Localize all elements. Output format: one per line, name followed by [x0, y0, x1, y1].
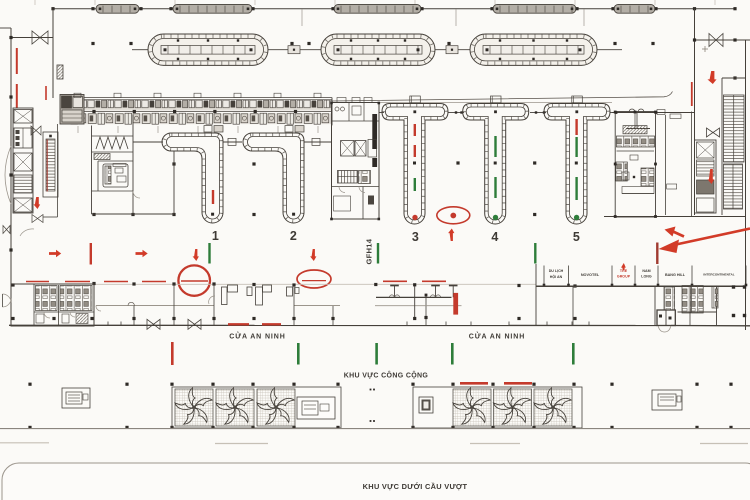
svg-text:4: 4 [491, 230, 498, 244]
svg-text:CỬA AN NINH: CỬA AN NINH [469, 332, 525, 341]
svg-text:GROUP: GROUP [617, 275, 631, 279]
svg-text:KHU VỰC CÔNG CỘNG: KHU VỰC CÔNG CỘNG [344, 371, 429, 380]
svg-text:1: 1 [212, 229, 219, 243]
svg-text:5: 5 [573, 230, 580, 244]
svg-text:NAM: NAM [642, 269, 650, 273]
svg-text:BANG HILL: BANG HILL [665, 273, 686, 277]
svg-text:HỘI AN: HỘI AN [550, 274, 563, 279]
svg-text:CỬA AN NINH: CỬA AN NINH [229, 332, 285, 341]
svg-text:2: 2 [290, 229, 297, 243]
svg-text:LONG: LONG [641, 275, 652, 279]
svg-text:DU LỊCH: DU LỊCH [549, 269, 564, 273]
svg-text:KHU VỰC DƯỚI CẦU VƯỢT: KHU VỰC DƯỚI CẦU VƯỢT [363, 481, 468, 491]
svg-text:GFH14: GFH14 [365, 238, 374, 264]
svg-text:NOVOTEL: NOVOTEL [581, 273, 600, 277]
svg-text:3: 3 [412, 230, 419, 244]
svg-text:INTERCONTINENTAL: INTERCONTINENTAL [703, 273, 734, 277]
